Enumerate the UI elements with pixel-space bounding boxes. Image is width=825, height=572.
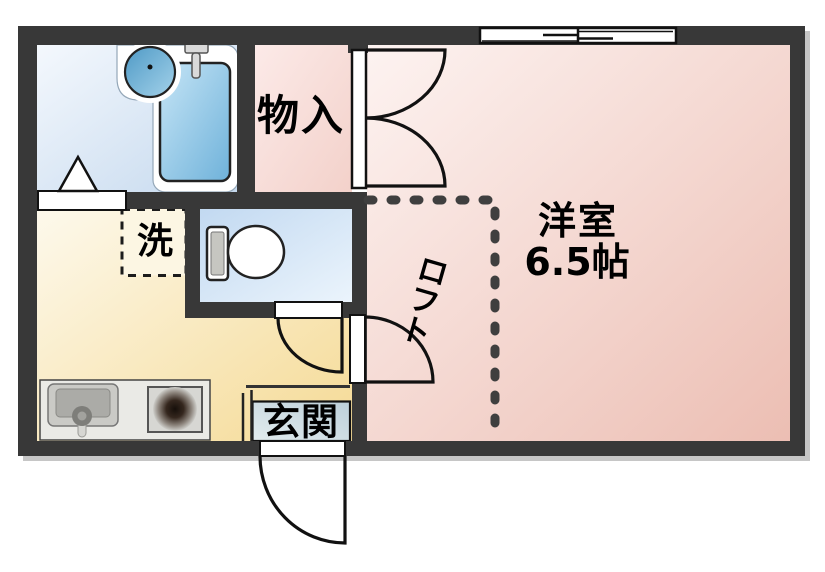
wall-left [18, 26, 37, 456]
wall-right [790, 26, 805, 456]
wall-bath-storage [237, 45, 255, 192]
western-room-label: 洋室 [538, 202, 618, 240]
wall-top [18, 26, 805, 45]
laundry-label: 洗 [137, 224, 173, 260]
stove-burner-icon [153, 387, 197, 431]
western-room-size-label: 6.5帖 [524, 243, 629, 281]
basin-drain [148, 65, 153, 70]
faucet-stem [192, 53, 200, 78]
basin-icon [125, 47, 175, 97]
storage-door-frame [352, 50, 366, 188]
floor-plan: 物入 洋室 6.5帖 洗 玄関 ロ フ ト [0, 0, 825, 572]
toilet-door-opening [275, 302, 342, 318]
storage-room-label: 物入 [257, 95, 345, 137]
wall-toilet-left [185, 209, 200, 302]
toilet-icon [207, 226, 284, 280]
wall-bottom [18, 441, 805, 456]
sink-faucet-cap [78, 412, 87, 421]
entrance-door-swing [260, 456, 345, 543]
entrance-label: 玄関 [263, 404, 339, 441]
kitchen-counter [40, 380, 210, 440]
bathroom-door-opening [38, 191, 126, 210]
kitchen-door-opening [350, 315, 365, 383]
toilet-bowl [228, 226, 284, 278]
sliding-window-icon [480, 28, 676, 44]
toilet-tank-lid [211, 232, 224, 275]
